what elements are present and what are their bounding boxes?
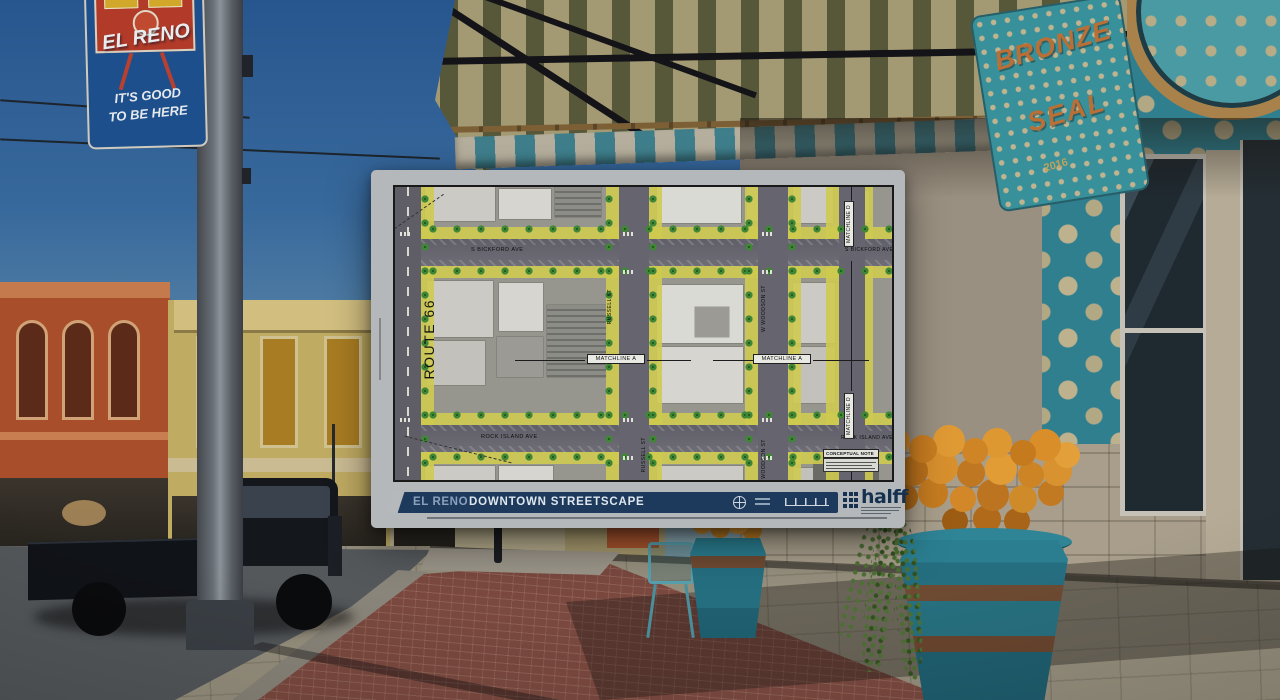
logo-square (843, 492, 847, 496)
matchline-line (647, 360, 691, 361)
sheet-city: EL RENO (413, 496, 468, 508)
title-bar-micro-text (755, 498, 770, 500)
band (0, 432, 170, 440)
rock-island-ave-label: ROCK ISLAND AVE (481, 434, 538, 440)
crosswalk (762, 270, 774, 274)
tree-row (647, 187, 661, 480)
map-building (499, 466, 553, 480)
map-parking-lot (555, 187, 601, 217)
window-frame (1120, 154, 1208, 516)
note-text-line (826, 468, 875, 469)
russell-st-label-bottom: RUSSELL ST (641, 437, 647, 472)
map-building (657, 466, 743, 480)
map-building (657, 347, 743, 403)
banner-bracket (242, 55, 253, 77)
russell-st-label-top: RUSSELL ST (607, 289, 613, 324)
matchline-d-box: MATCHLINE D (844, 393, 854, 439)
note-text-line (826, 465, 872, 466)
banner-water-tower-legs (119, 53, 134, 91)
map-building (695, 307, 729, 337)
firm-address-line (861, 510, 899, 511)
logo-square (843, 504, 847, 508)
truck-hood (328, 516, 342, 576)
matchline-d-line (851, 187, 852, 201)
window-mullion (1125, 328, 1203, 333)
arched-window (62, 320, 94, 420)
route-66-label: ROUTE 66 (421, 299, 437, 379)
title-bar-micro-text (755, 503, 770, 505)
banner-yellow-tab (104, 0, 138, 9)
conceptual-note-title: CONCEPTUAL NOTE (826, 451, 874, 456)
tall-window (260, 336, 298, 448)
matchline-line (713, 360, 753, 361)
w-woodson-st-label: W WOODSON ST (761, 285, 767, 332)
arched-window (16, 320, 48, 420)
woodson-st-label: WOODSON ST (761, 439, 767, 479)
sign-word-1: BRONZE (979, 11, 1126, 80)
matchline-line (813, 360, 869, 361)
map-building (497, 337, 543, 377)
small-planter-pot (690, 538, 766, 638)
streetscape-plan-sheet: ROUTE 66 S BICKFORD AVE S BICKFORD AVE R… (371, 170, 905, 528)
logo-square (854, 504, 858, 508)
cafe-chair (648, 542, 694, 584)
banner-water-tower-legs (160, 52, 176, 89)
conceptual-note-box: CONCEPTUAL NOTE (823, 449, 879, 458)
el-reno-street-photo: BRONZE SEAL 2016 (0, 0, 1280, 700)
matchline-a-box: MATCHLINE A (753, 354, 811, 364)
note-text-line (826, 462, 876, 463)
title-bar-slant-cap (388, 492, 405, 513)
matchline-d-line (851, 261, 852, 391)
crosswalk (623, 232, 635, 236)
tree-row (743, 187, 757, 480)
matchline-a-box: MATCHLINE A (587, 354, 645, 364)
matchline-line (515, 360, 585, 361)
tall-window (324, 336, 362, 448)
truck-rear-wheel (72, 582, 126, 636)
crosswalk (762, 232, 774, 236)
matchline-d-box: MATCHLINE D (844, 201, 854, 247)
sign-word-2: SEAL (1000, 80, 1134, 146)
map-building (499, 283, 543, 331)
s-bickford-ave-label: S BICKFORD AVE (471, 247, 523, 253)
tree-row (786, 187, 800, 480)
halff-wordmark: halff (861, 486, 908, 508)
logo-square (843, 498, 847, 502)
large-planter-pot (900, 540, 1068, 700)
map-parking-lot (547, 305, 607, 377)
crosswalk (400, 232, 412, 236)
crosswalk (400, 418, 412, 422)
banner-yellow-tab (148, 0, 182, 8)
crosswalk (623, 418, 635, 422)
right-glass-door (1240, 140, 1280, 580)
wall-column (1206, 150, 1242, 580)
crosswalk (762, 418, 774, 422)
logo-square (849, 492, 853, 496)
logo-square (849, 498, 853, 502)
firm-address-line (861, 507, 901, 508)
sign-year: 2016 (1043, 156, 1070, 174)
halff-logo-block: halff (843, 488, 901, 518)
map-building (499, 189, 551, 219)
crosswalk (623, 270, 635, 274)
aerial-plan-map: ROUTE 66 S BICKFORD AVE S BICKFORD AVE R… (393, 185, 894, 482)
crosswalk (623, 456, 635, 460)
tree-row (603, 187, 617, 480)
el-reno-pole-banner: EL RENO IT'S GOOD TO BE HERE (84, 0, 208, 150)
banner-bracket (242, 168, 251, 184)
north-arrow-icon (733, 496, 746, 509)
cornice (0, 282, 170, 298)
map-building (425, 187, 495, 221)
halff-grid-logo (843, 492, 859, 508)
truck-front-wheel (276, 574, 332, 630)
arched-window (108, 320, 140, 420)
pickup-truck (28, 476, 342, 646)
lamp-post-base (186, 600, 254, 650)
logo-square (854, 492, 858, 496)
scale-bar (785, 498, 829, 506)
firm-address-line (861, 513, 891, 514)
pedestrian-body (494, 525, 502, 563)
logo-square (849, 504, 853, 508)
s-bickford-ave-label-right: S BICKFORD AVE (845, 247, 893, 253)
conceptual-note-body (823, 458, 879, 472)
bronze-seal-sign: BRONZE SEAL 2016 (969, 0, 1150, 213)
sheet-project-title: DOWNTOWN STREETSCAPE (469, 496, 645, 508)
sheet-title-bar: EL RENO DOWNTOWN STREETSCAPE (397, 492, 838, 513)
truck-bed (28, 538, 212, 601)
map-building (425, 466, 495, 480)
sheet-margin-note (379, 318, 381, 380)
disclaimer-line (427, 517, 887, 519)
logo-square (854, 498, 858, 502)
map-building (657, 187, 741, 223)
